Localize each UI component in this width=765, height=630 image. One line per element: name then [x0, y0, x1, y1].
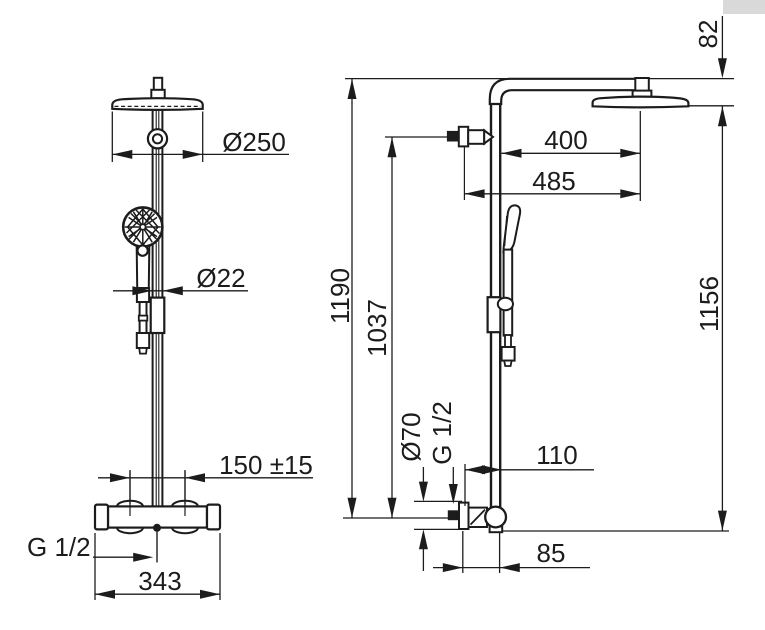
dim-side-wall-to-outlet	[433, 531, 590, 573]
label-wall-to-outlet: 85	[537, 538, 566, 568]
dim-side-wall-to-rail	[465, 464, 594, 506]
label-head-drop: 82	[693, 20, 723, 49]
side-view	[343, 16, 734, 573]
label-side-thread: G 1/2	[427, 401, 457, 465]
faucet-right-handle	[207, 505, 220, 530]
front-shower-head	[112, 98, 202, 110]
label-head-plane-height: 1156	[694, 276, 724, 332]
faucet-left-handle	[95, 505, 108, 530]
label-wall-to-head: 485	[532, 166, 575, 196]
shower-dimension-drawing: Ø250 Ø22 150 ±15 G 1/2 343 82 400 485 11…	[0, 0, 765, 630]
technical-drawing-page: Ø250 Ø22 150 ±15 G 1/2 343 82 400 485 11…	[0, 0, 765, 630]
front-faucet-body	[95, 471, 220, 563]
leader-front-thread	[93, 553, 153, 562]
label-flange-diameter: Ø70	[396, 412, 426, 461]
label-front-thread: G 1/2	[27, 532, 91, 562]
label-rail-to-head: 400	[544, 125, 587, 155]
front-ball-joint	[148, 129, 167, 148]
side-lower-wall-fitting	[343, 503, 729, 533]
side-upper-wall-fitting	[385, 127, 493, 200]
label-rail-diameter: Ø22	[196, 263, 245, 293]
label-inlet-height: 1037	[362, 299, 392, 357]
side-head-connector	[633, 78, 652, 98]
side-hand-shower	[488, 205, 521, 366]
front-rail-holder	[151, 298, 165, 333]
label-total-height: 1190	[325, 268, 355, 324]
label-inlet-spacing: 150 ±15	[219, 450, 313, 480]
side-holder-knob	[498, 298, 513, 310]
hand-shower-button	[137, 245, 147, 255]
label-body-width: 343	[138, 566, 181, 596]
side-shower-head	[593, 97, 689, 108]
leader-side-thread	[449, 467, 458, 504]
front-head-connector	[151, 78, 164, 99]
label-head-diameter: Ø250	[222, 127, 286, 157]
label-wall-to-rail: 110	[536, 440, 577, 470]
